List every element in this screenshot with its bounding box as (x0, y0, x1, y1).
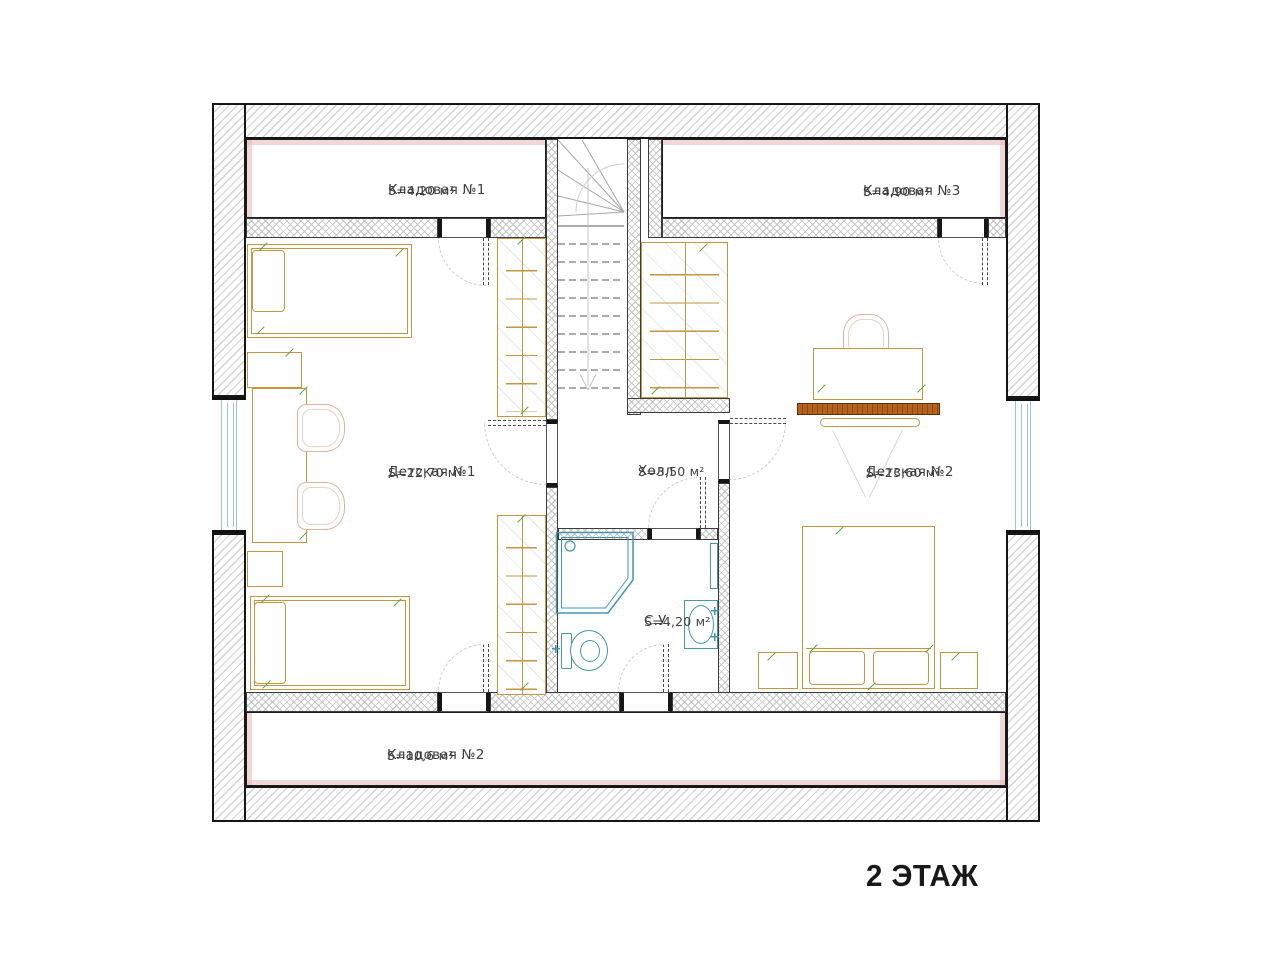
interior-wall (246, 692, 438, 712)
pillow (252, 250, 285, 312)
door-opening-hall (546, 420, 558, 487)
chair (297, 404, 345, 452)
interior-wall (662, 218, 938, 238)
sink-tap (711, 607, 719, 615)
door-arc (938, 238, 984, 284)
interior-wall (648, 139, 662, 238)
interior-wall (718, 483, 730, 712)
shower (555, 531, 635, 615)
nightstand (247, 551, 283, 587)
room-storage3 (662, 139, 1006, 218)
interior-wall-closet (627, 398, 730, 413)
interior-wall-stair-left (546, 139, 558, 420)
window-left (212, 397, 246, 533)
room-storage2 (246, 712, 1006, 786)
toilet-bowl-inner (580, 640, 600, 662)
room-area: S=4,20 м² (644, 613, 710, 630)
room-area: S=22,70 м² (388, 464, 463, 481)
outer-wall-bottom (212, 786, 1040, 822)
stair-winders (558, 140, 624, 216)
door-arc (438, 644, 484, 692)
stair-treads (558, 244, 624, 388)
door-arc (618, 644, 664, 692)
door-arc (730, 421, 786, 480)
closet (641, 242, 728, 398)
outer-wall-left-lower (212, 533, 246, 822)
room-area: S=3,50 м² (638, 463, 704, 480)
floor-title: 2 ЭТАЖ (866, 858, 978, 894)
sink-tap (711, 633, 719, 641)
door-leaf (700, 477, 706, 528)
floor-plan: Кладовая №1 S=4,20 м² Кладовая №3 S=4,90… (0, 0, 1280, 960)
chair (297, 482, 345, 530)
nightstand (758, 652, 798, 689)
door-arc (648, 477, 700, 528)
pillow (254, 602, 286, 684)
door-opening-storage1 (438, 218, 490, 238)
window-right (1006, 398, 1040, 533)
wardrobe (497, 515, 546, 695)
door-arc (438, 238, 486, 286)
leader-line (832, 430, 866, 498)
nightstand (940, 652, 978, 689)
door-arc (484, 422, 546, 485)
pillow (873, 651, 929, 685)
tv (820, 418, 920, 427)
room-area: S=23,60 м² (866, 464, 941, 481)
pillow (809, 651, 865, 685)
interior-wall (988, 218, 1006, 238)
media-console (797, 403, 940, 415)
toilet-valve (552, 645, 560, 653)
interior-wall (700, 528, 718, 540)
interior-wall (490, 692, 620, 712)
interior-wall (672, 692, 1006, 712)
room-area: S=4,20 м² (388, 182, 454, 199)
interior-wall-stair-right (627, 139, 641, 415)
door-opening-kids1-storage2 (438, 692, 490, 712)
door-opening-storage3 (938, 218, 988, 238)
desk (813, 348, 923, 400)
outer-wall-top (212, 103, 1040, 139)
nightstand (247, 352, 302, 388)
towel-radiator (710, 543, 718, 589)
room-area: S=4,90 м² (863, 183, 929, 200)
outer-wall-right-lower (1006, 533, 1040, 822)
interior-wall (246, 218, 438, 238)
outer-wall-left-upper (212, 103, 246, 397)
outer-wall-right-upper (1006, 103, 1040, 398)
room-storage1 (246, 139, 546, 218)
double-bed (802, 526, 935, 689)
door-opening-bathroom (648, 528, 700, 540)
room-area: S=10,6 м² (387, 747, 453, 764)
door-opening-bath-storage2 (620, 692, 672, 712)
door-opening-kids2 (718, 420, 730, 483)
stairs (558, 140, 628, 412)
wardrobe (497, 238, 546, 417)
interior-wall (490, 218, 546, 238)
